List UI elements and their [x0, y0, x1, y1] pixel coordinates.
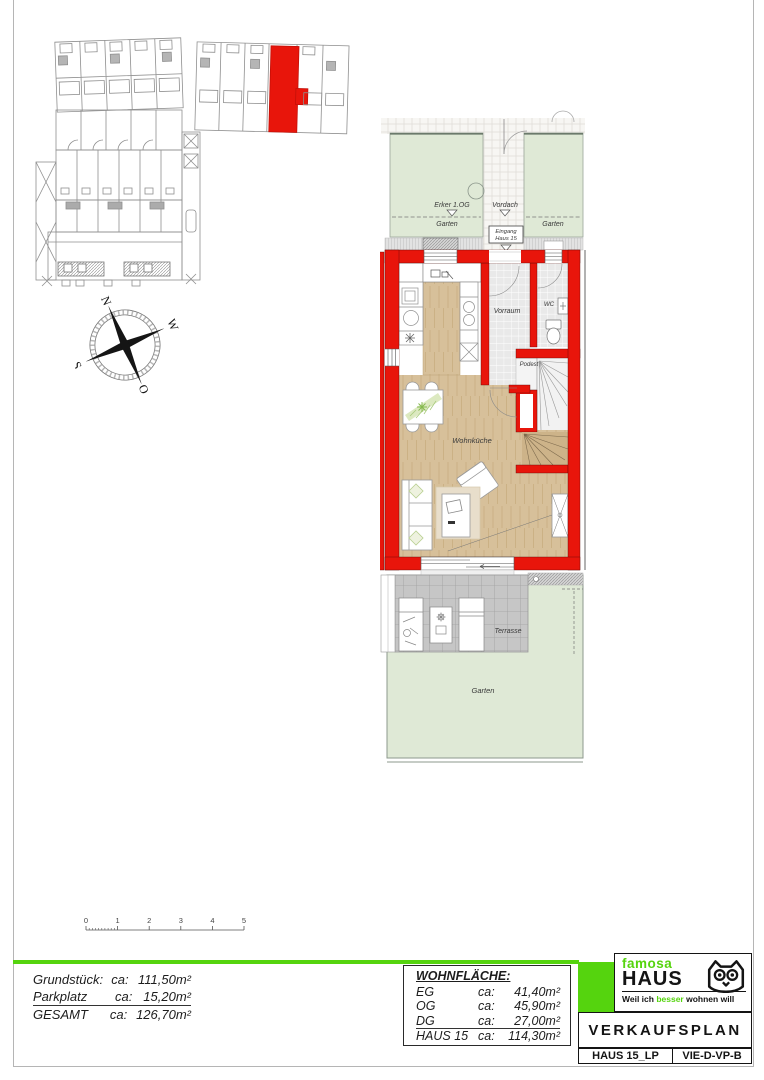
summary-ca: ca: [111, 971, 138, 988]
doc-code-right: VIE-D-VP-B [672, 1048, 752, 1064]
tagline-green: besser [656, 994, 683, 1004]
living-area-title: WOHNFLÄCHE: [416, 969, 560, 984]
row-value: 45,90m² [502, 999, 560, 1014]
label-vorraum: Vorraum [494, 308, 521, 315]
summary-value: 126,70m² [136, 1006, 191, 1023]
living-area-row-eg: EG ca: 41,40m² [416, 985, 560, 1000]
compass-rose: W O S N [75, 285, 185, 415]
scale-tick-4: 4 [210, 916, 214, 925]
compass-label-north: N [98, 294, 114, 308]
row-label: EG [416, 985, 478, 1000]
window [545, 250, 562, 263]
summary-label: Grundstück: [33, 971, 111, 988]
compass-label-south: S [75, 360, 85, 372]
label-wc: WC [544, 301, 555, 308]
label-garten-top-left: Garten [436, 221, 458, 228]
compass-label-east: O [136, 382, 152, 396]
entrance-door-opening [489, 250, 521, 263]
plan-title: VERKAUFSPLAN [578, 1012, 752, 1048]
scale-tick-3: 3 [179, 916, 183, 925]
tagline-post: wohnen will [684, 994, 735, 1004]
row-label: OG [416, 999, 478, 1014]
compass-label-west: W [164, 317, 182, 334]
summary-row-parkplatz: Parkplatz ca: 15,20m² [33, 988, 191, 1006]
row-value: 114,30m² [502, 1029, 560, 1044]
summary-label: GESAMT [33, 1006, 110, 1023]
summary-value: 15,20m² [143, 988, 191, 1005]
label-vordach: Vordach [492, 202, 518, 209]
row-label: DG [416, 1014, 478, 1029]
scale-tick-2: 2 [147, 916, 151, 925]
verkaufsplan-sheet: W O S N [0, 0, 764, 1080]
footer-accent-line [13, 960, 579, 964]
site-building-left [55, 38, 183, 112]
living-area-row-dg: DG ca: 27,00m² [416, 1014, 560, 1030]
row-value: 41,40m² [502, 985, 560, 1000]
window [424, 250, 457, 263]
label-erker: Erker 1.OG [434, 202, 470, 209]
site-area-summary: Grundstück: ca: 111,50m² Parkplatz ca: 1… [33, 971, 191, 1023]
highlighted-unit [269, 46, 299, 133]
dishwasher-symbol-icon [405, 333, 415, 343]
tagline-pre: Weil ich [622, 994, 656, 1004]
label-wohnkueche: Wohnküche [452, 436, 492, 445]
site-plan [28, 30, 358, 290]
owl-icon [705, 957, 747, 993]
doc-code-left: HAUS 15_LP [578, 1048, 672, 1064]
label-terrasse: Terrasse [495, 628, 522, 635]
summary-label: Parkplatz [33, 988, 115, 1005]
sofa [402, 480, 432, 550]
coffee-table [442, 494, 470, 537]
summary-row-grundstueck: Grundstück: ca: 111,50m² [33, 971, 191, 988]
gravel-band [423, 238, 458, 250]
company-logo: famosa HAUS Weil ich besser wohnen will [614, 953, 752, 1012]
summary-ca: ca: [110, 1006, 136, 1023]
label-garten-top-right: Garten [542, 221, 564, 228]
row-label: HAUS 15 [416, 1029, 478, 1044]
row-ca: ca: [478, 985, 502, 1000]
terrace-sliding-door [421, 557, 514, 570]
label-eingang-2: Haus 15 [495, 236, 517, 242]
site-building-right [195, 42, 349, 134]
scale-tick-0: 0 [84, 916, 88, 925]
plant-icon [417, 402, 427, 412]
summary-value: 111,50m² [138, 971, 191, 988]
row-ca: ca: [478, 999, 502, 1014]
titleblock-accent [578, 962, 614, 1012]
scale-bar: 0 1 2 3 4 5 [80, 914, 255, 942]
doc-code-row: HAUS 15_LP VIE-D-VP-B [578, 1048, 752, 1064]
row-value: 27,00m² [502, 1014, 560, 1029]
floor-plan: Erker 1.OG Vordach Garten Garten Eingang… [380, 110, 595, 770]
label-garten-bottom: Garten [472, 686, 495, 695]
living-area-table: WOHNFLÄCHE: EG ca: 41,40m² OG ca: 45,90m… [403, 965, 571, 1046]
row-ca: ca: [478, 1029, 502, 1044]
scale-tick-5: 5 [242, 916, 246, 925]
scale-tick-1: 1 [116, 916, 120, 925]
window [385, 349, 399, 366]
label-podest: Podest [520, 362, 539, 368]
summary-row-gesamt: GESAMT ca: 126,70m² [33, 1006, 191, 1023]
living-area-row-og: OG ca: 45,90m² [416, 999, 560, 1014]
living-area-row-haus15: HAUS 15 ca: 114,30m² [416, 1029, 560, 1044]
summary-ca: ca: [115, 988, 143, 1005]
row-ca: ca: [478, 1014, 502, 1029]
label-eingang-1: Eingang [495, 229, 517, 235]
